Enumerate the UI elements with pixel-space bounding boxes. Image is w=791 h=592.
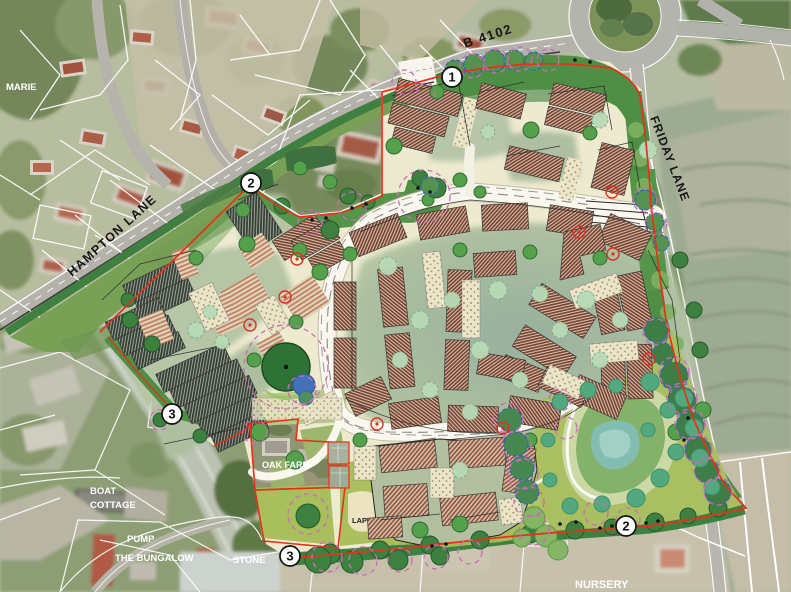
svg-text:COTTAGE: COTTAGE	[90, 500, 136, 511]
svg-text:OAK FARM: OAK FARM	[262, 460, 310, 470]
svg-text:THE BUNGALOW: THE BUNGALOW	[115, 553, 194, 564]
svg-text:2: 2	[247, 176, 254, 191]
svg-text:2: 2	[622, 519, 629, 534]
svg-text:STONE: STONE	[233, 555, 266, 566]
svg-text:BOAT: BOAT	[90, 486, 116, 497]
svg-text:PUMP: PUMP	[127, 534, 155, 545]
svg-text:1: 1	[448, 70, 455, 85]
svg-text:NURSERY: NURSERY	[575, 579, 629, 591]
svg-text:3: 3	[286, 549, 293, 564]
svg-text:MARIE: MARIE	[6, 82, 37, 93]
svg-text:LAP: LAP	[352, 516, 367, 525]
svg-text:3: 3	[168, 407, 175, 422]
